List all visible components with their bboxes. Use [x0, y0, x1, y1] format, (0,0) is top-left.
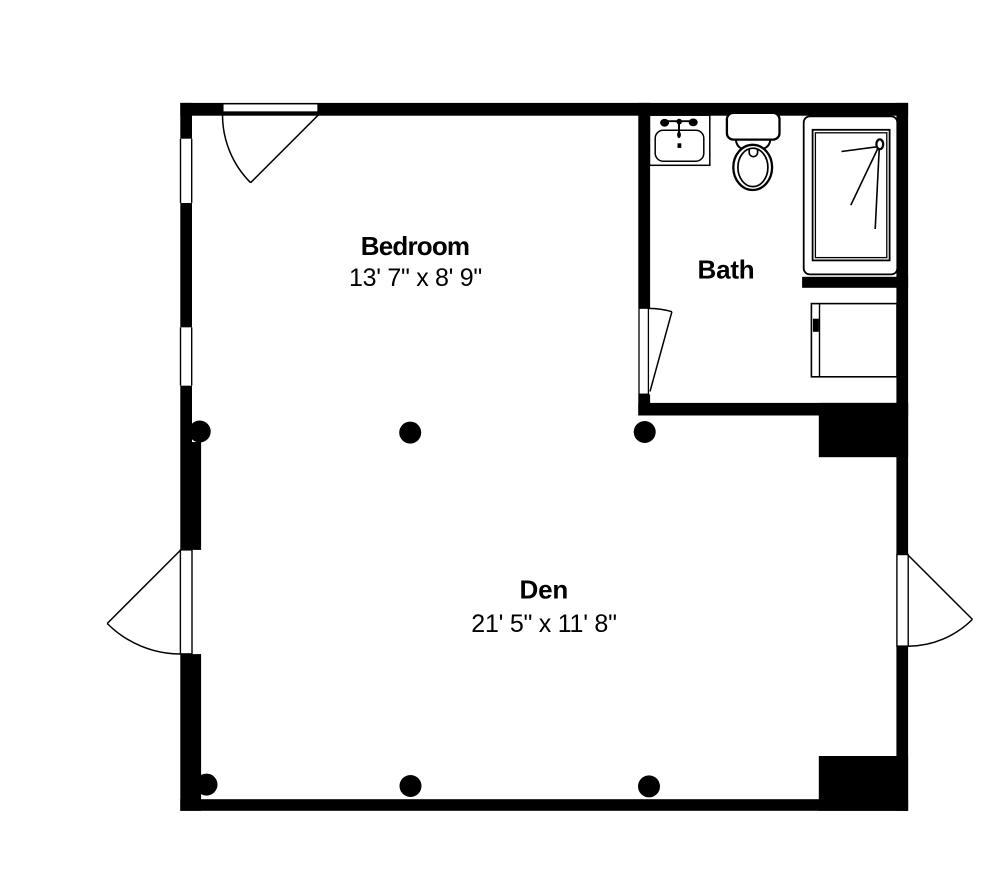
svg-text:Bath: Bath: [698, 255, 755, 285]
svg-text:Den: Den: [520, 575, 569, 605]
svg-text:21' 5" x 11' 8": 21' 5" x 11' 8": [471, 610, 616, 638]
svg-text:13' 7" x 8' 9": 13' 7" x 8' 9": [349, 264, 482, 292]
svg-text:Bedroom: Bedroom: [361, 231, 470, 261]
